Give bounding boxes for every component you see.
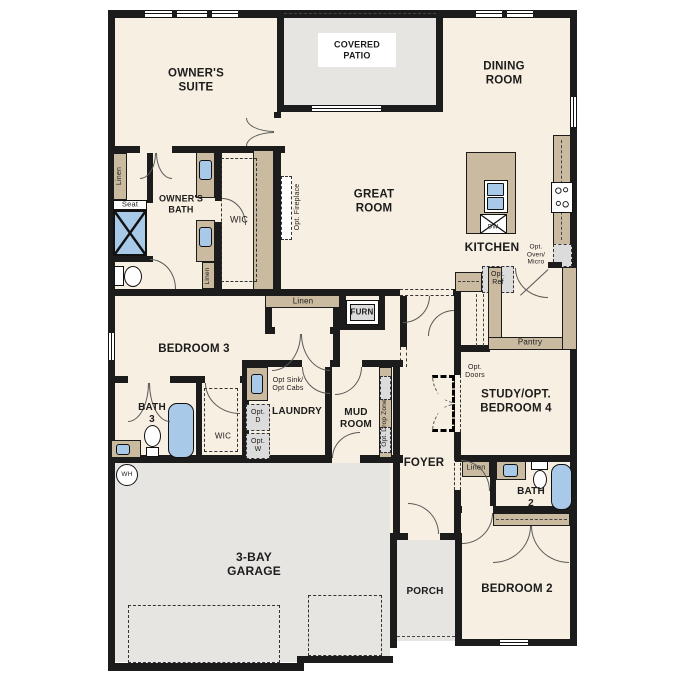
- window: [177, 10, 207, 18]
- shower: [113, 210, 147, 256]
- wall: [111, 455, 332, 463]
- opt-fireplace-box: [281, 176, 292, 240]
- window: [212, 10, 238, 18]
- wall: [196, 383, 202, 460]
- tub-bath2: [551, 464, 572, 510]
- wall: [108, 663, 304, 671]
- label-opt-w: Opt. W: [251, 438, 265, 455]
- stove: [551, 182, 573, 213]
- label-opt-ref: Opt. Ref: [491, 271, 505, 288]
- room-label-kitchen: KITCHEN: [465, 240, 520, 254]
- room-label-bedroom3: BEDROOM 3: [158, 343, 229, 357]
- toilet-bowl-bath3: [144, 425, 161, 447]
- sink-bath2: [503, 464, 518, 477]
- wall: [340, 325, 385, 330]
- wall: [277, 10, 284, 112]
- wall: [548, 262, 562, 268]
- porch-edge-dashed: [397, 636, 455, 637]
- label-opt-fireplace: Opt. Fireplace: [294, 184, 302, 231]
- wall: [108, 460, 115, 671]
- window: [570, 97, 577, 127]
- label-opt-oven-micro: Opt. Oven/ Micro: [527, 244, 545, 267]
- label-linen-bath2: Linen: [466, 464, 485, 473]
- label-pantry: Pantry: [518, 337, 542, 346]
- laundry-sink: [251, 374, 263, 394]
- room-label-garage: 3-BAY GARAGE: [227, 550, 281, 578]
- cased-opening: [454, 458, 461, 490]
- stove-burners-icon: [552, 183, 572, 212]
- label-furn: FURN: [350, 307, 373, 316]
- toilet-base-bath3: [146, 447, 159, 457]
- cabinet-dashed-line: [458, 281, 479, 282]
- island-sink-bowl: [487, 183, 504, 196]
- window: [145, 10, 172, 18]
- wall: [265, 327, 275, 334]
- wall: [297, 656, 304, 671]
- water-heater-label: WH: [121, 471, 132, 479]
- wall: [390, 533, 397, 648]
- shower-x-icon: [115, 212, 145, 254]
- room-label-wic-owners: WIC: [230, 215, 248, 226]
- sink-bath3: [116, 444, 130, 455]
- label-opt-drop-zone: Opt. Drop Zone: [381, 399, 389, 447]
- wall: [108, 289, 400, 296]
- wall: [570, 10, 577, 460]
- kitchen-cabinet: [455, 272, 482, 292]
- sink-owners-1: [199, 160, 212, 180]
- closet-rod-dashed: [496, 519, 567, 520]
- room-label-laundry: LAUNDRY: [272, 406, 322, 418]
- room-label-great-room: GREAT ROOM: [354, 188, 394, 215]
- wall: [297, 656, 393, 663]
- opt-wall-dashed: [476, 294, 477, 346]
- wall: [108, 376, 128, 383]
- label-linen-hall: Linen: [293, 296, 314, 305]
- opt-wall-dashed: [483, 294, 484, 346]
- wall: [455, 506, 462, 513]
- pantry-wall-right: [562, 267, 577, 350]
- window: [500, 639, 528, 646]
- cased-opening: [400, 289, 454, 296]
- window: [507, 10, 533, 18]
- garage-door-single: [308, 595, 382, 656]
- room-label-mud-room: MUD ROOM: [340, 407, 372, 431]
- wall: [455, 533, 462, 646]
- window: [476, 10, 502, 18]
- room-label-owners-suite: OWNER'S SUITE: [168, 67, 224, 94]
- wall: [460, 345, 490, 352]
- wall: [274, 146, 281, 292]
- wall: [108, 146, 140, 153]
- wall: [108, 256, 153, 262]
- room-label-covered-patio: COVERED PATIO: [334, 39, 380, 60]
- label-linen-owners: Linen: [116, 167, 124, 185]
- drop-zone-box: [380, 376, 391, 400]
- sink-owners-2: [199, 227, 212, 247]
- label-seat: Seat: [122, 201, 138, 210]
- wall: [240, 376, 245, 383]
- room-label-bath2: BATH 2: [517, 486, 545, 510]
- island-sink-bowl: [487, 197, 504, 210]
- label-opt-sink-cabs: Opt Sink/ Opt Cabs: [272, 377, 303, 394]
- room-label-foyer: FOYER: [404, 457, 445, 471]
- room-label-bedroom2: BEDROOM 2: [481, 583, 552, 597]
- wall: [454, 296, 461, 375]
- wall: [274, 112, 281, 118]
- wall: [330, 360, 335, 367]
- toilet-tank-bath2: [531, 461, 548, 470]
- floor-plan: WH OWNER'S SUITE COVERED PATIO DINING RO…: [0, 0, 687, 687]
- toilet-tank-owners: [114, 266, 124, 286]
- window: [108, 333, 115, 360]
- room-label-study: STUDY/OPT. BEDROOM 4: [480, 388, 551, 415]
- room-label-wic-bed3: WIC: [215, 431, 231, 440]
- wall: [436, 10, 443, 112]
- label-linen-owners-2: Linen: [204, 268, 212, 285]
- garage-door-double: [128, 605, 280, 663]
- wall: [393, 363, 400, 540]
- room-label-dining-room: DINING ROOM: [483, 60, 524, 87]
- room-label-owners-bath: OWNER'S BATH: [159, 193, 203, 214]
- patio-sliding-door: [312, 105, 381, 112]
- water-heater: WH: [116, 464, 138, 486]
- label-opt-d: Opt. D: [251, 409, 265, 426]
- opt-doors-opening: [454, 375, 461, 432]
- wall: [170, 376, 205, 383]
- room-label-porch: PORCH: [406, 586, 443, 598]
- patio-edge-dashed: [284, 13, 436, 14]
- label-opt-doors: Opt. Doors: [465, 364, 485, 381]
- label-dw: DW: [488, 224, 498, 231]
- room-label-bath3: BATH 3: [138, 402, 166, 426]
- toilet-bowl-owners: [124, 266, 142, 287]
- tub-bath3: [168, 403, 194, 458]
